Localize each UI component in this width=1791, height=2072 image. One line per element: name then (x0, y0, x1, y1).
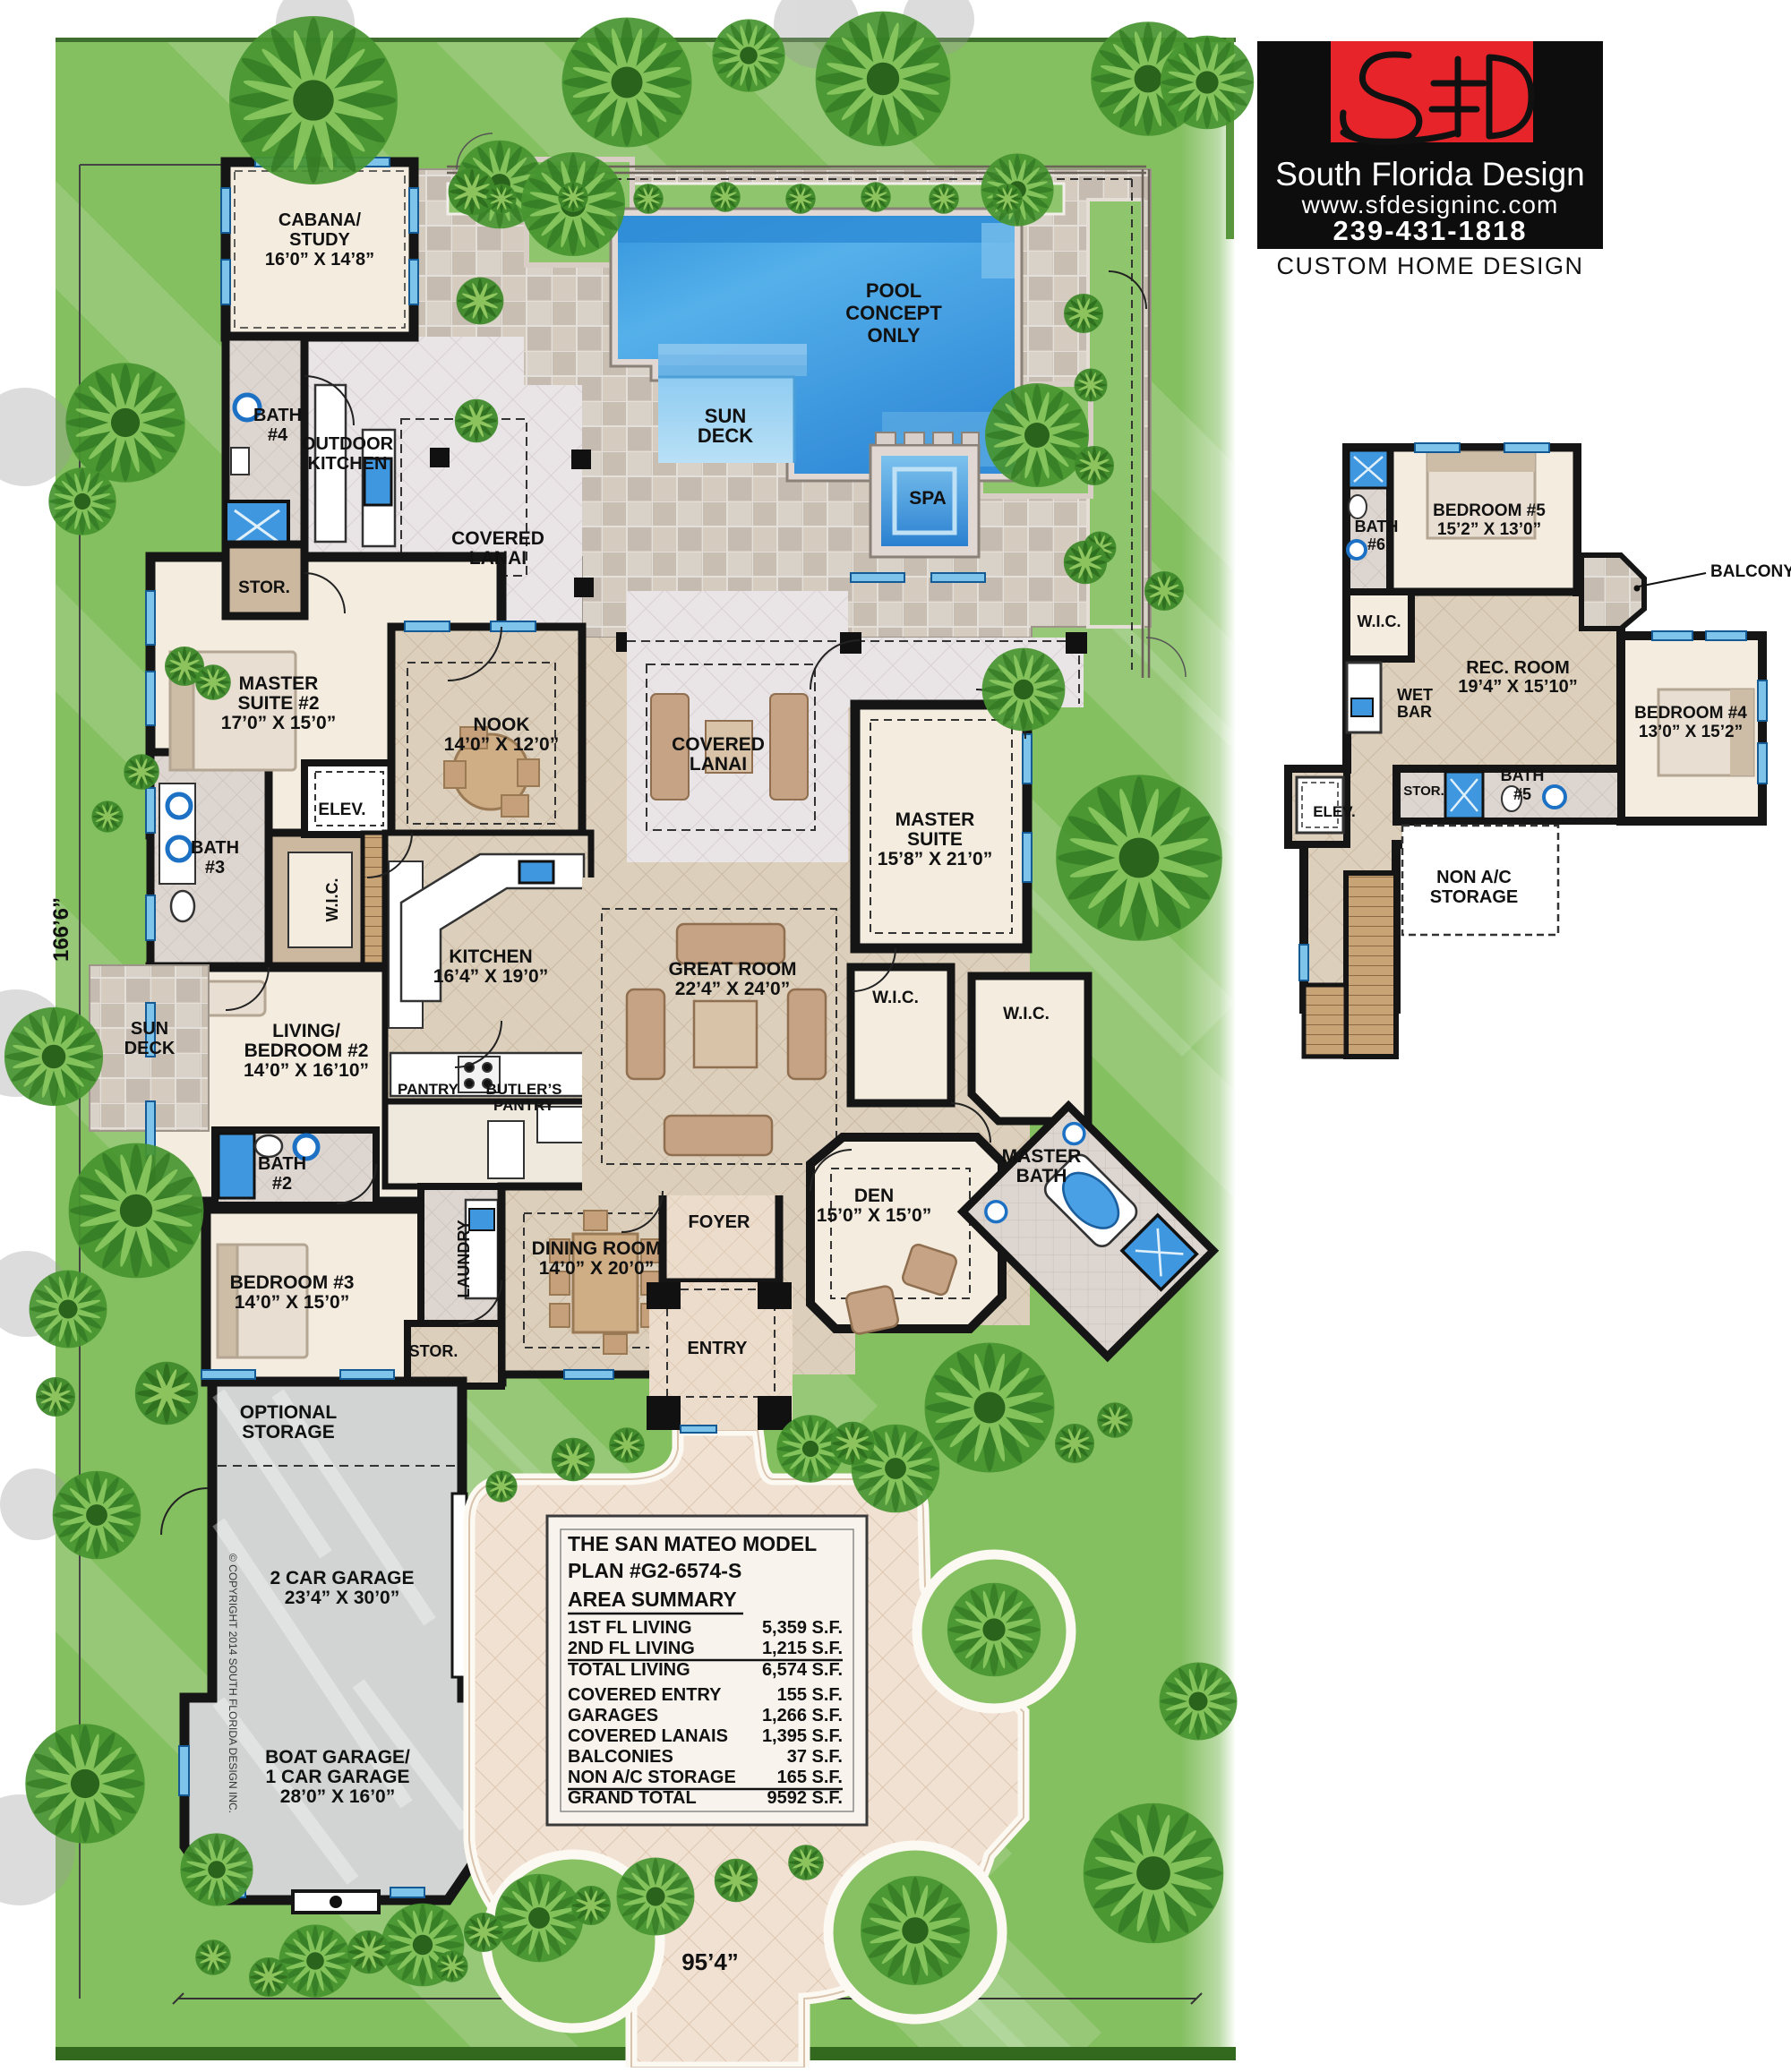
svg-text:#3: #3 (205, 858, 225, 878)
svg-text:#2: #2 (272, 1174, 292, 1194)
svg-text:STOR.: STOR. (238, 578, 290, 597)
svg-text:KITCHEN: KITCHEN (449, 946, 532, 967)
svg-text:GRAND TOTAL: GRAND TOTAL (568, 1788, 697, 1808)
svg-text:South Florida Design: South Florida Design (1275, 156, 1585, 193)
svg-text:STUDY: STUDY (289, 230, 350, 250)
svg-text:19’4” X 15’10”: 19’4” X 15’10” (1458, 677, 1577, 697)
svg-text:1,215 S.F.: 1,215 S.F. (762, 1639, 843, 1658)
svg-text:STOR.: STOR. (409, 1342, 458, 1360)
svg-text:#4: #4 (268, 425, 288, 445)
svg-text:17’0” X 15’0”: 17’0” X 15’0” (221, 713, 336, 733)
svg-text:BATH: BATH (191, 838, 239, 858)
svg-text:CUSTOM HOME DESIGN: CUSTOM HOME DESIGN (1276, 253, 1583, 279)
svg-text:15’8” X 21’0”: 15’8” X 21’0” (878, 849, 992, 869)
svg-text:MASTER: MASTER (1002, 1146, 1082, 1167)
svg-text:BALCONIES: BALCONIES (568, 1747, 673, 1767)
svg-text:SUN: SUN (131, 1019, 168, 1039)
svg-text:2 CAR GARAGE: 2 CAR GARAGE (270, 1568, 414, 1588)
svg-text:ONLY: ONLY (867, 324, 920, 347)
svg-text:PANTRY: PANTRY (398, 1081, 459, 1098)
svg-text:BALCONY: BALCONY (1710, 562, 1791, 581)
svg-text:MASTER: MASTER (239, 673, 319, 694)
svg-text:NON A/C: NON A/C (1436, 868, 1512, 887)
svg-text:ENTRY: ENTRY (687, 1339, 748, 1358)
svg-text:BOAT GARAGE/: BOAT GARAGE/ (265, 1747, 410, 1768)
svg-text:9592 S.F.: 9592 S.F. (767, 1788, 843, 1808)
svg-text:SPA: SPA (909, 488, 947, 509)
svg-text:W.I.C.: W.I.C. (1003, 1005, 1050, 1023)
svg-text:BATH: BATH (258, 1154, 306, 1174)
svg-text:PLAN #G2-6574-S: PLAN #G2-6574-S (568, 1559, 741, 1582)
svg-text:BEDROOM #5: BEDROOM #5 (1433, 501, 1546, 520)
svg-text:165 S.F.: 165 S.F. (777, 1768, 843, 1787)
svg-text:ELEV.: ELEV. (318, 801, 365, 819)
svg-text:STOR.: STOR. (1403, 783, 1444, 799)
svg-text:COVERED LANAIS: COVERED LANAIS (568, 1726, 728, 1746)
svg-text:SUITE: SUITE (907, 829, 963, 850)
svg-text:#6: #6 (1367, 535, 1385, 553)
svg-text:1,395 S.F.: 1,395 S.F. (762, 1726, 843, 1746)
svg-text:FOYER: FOYER (689, 1212, 750, 1232)
svg-text:ELEV.: ELEV. (1313, 803, 1356, 820)
svg-text:COVERED ENTRY: COVERED ENTRY (568, 1685, 722, 1705)
svg-text:COVERED: COVERED (451, 528, 544, 549)
svg-text:COVERED: COVERED (672, 734, 765, 755)
svg-text:GARAGES: GARAGES (568, 1706, 658, 1725)
svg-text:STORAGE: STORAGE (1430, 887, 1519, 907)
svg-text:KITCHEN: KITCHEN (308, 454, 388, 474)
svg-text:239-431-1818: 239-431-1818 (1333, 215, 1527, 246)
svg-text:OUTDOOR: OUTDOOR (302, 434, 394, 454)
svg-text:BAR: BAR (1397, 703, 1432, 721)
svg-text:TOTAL LIVING: TOTAL LIVING (568, 1660, 690, 1680)
svg-text:23’4” X 30’0”: 23’4” X 30’0” (285, 1588, 399, 1608)
svg-text:15’0” X 15’0”: 15’0” X 15’0” (817, 1205, 931, 1226)
svg-text:BEDROOM #4: BEDROOM #4 (1634, 704, 1747, 723)
svg-text:SUITE #2: SUITE #2 (237, 693, 319, 714)
svg-text:POOL: POOL (866, 279, 921, 302)
svg-text:LANAI: LANAI (469, 548, 527, 569)
svg-text:2ND FL LIVING: 2ND FL LIVING (568, 1639, 695, 1658)
svg-text:BEDROOM #3: BEDROOM #3 (230, 1272, 355, 1293)
svg-text:14’0” X 16’10”: 14’0” X 16’10” (244, 1060, 369, 1081)
svg-text:95’4”: 95’4” (681, 1948, 739, 1975)
svg-text:155 S.F.: 155 S.F. (777, 1685, 843, 1705)
svg-text:DEN: DEN (854, 1186, 894, 1206)
svg-text:BATH: BATH (253, 406, 302, 425)
svg-text:LANAI: LANAI (690, 754, 747, 775)
svg-text:OPTIONAL: OPTIONAL (240, 1402, 338, 1423)
svg-text:GREAT ROOM: GREAT ROOM (668, 959, 796, 980)
svg-text:BATH: BATH (1016, 1166, 1067, 1186)
svg-text:CABANA/: CABANA/ (279, 210, 362, 230)
svg-text:W.I.C.: W.I.C. (1358, 612, 1401, 630)
svg-text:BUTLER’S: BUTLER’S (486, 1081, 562, 1098)
svg-text:BATH: BATH (1355, 518, 1399, 535)
svg-text:13’0” X 15’2”: 13’0” X 15’2” (1639, 723, 1743, 741)
svg-text:CONCEPT: CONCEPT (845, 302, 942, 324)
svg-text:28’0” X 16’0”: 28’0” X 16’0” (280, 1786, 395, 1807)
svg-text:W.I.C.: W.I.C. (872, 989, 919, 1007)
svg-text:NOOK: NOOK (474, 715, 530, 735)
svg-text:166’6”: 166’6” (49, 897, 73, 962)
svg-text:AREA SUMMARY: AREA SUMMARY (568, 1588, 737, 1611)
svg-text:BATH: BATH (1501, 766, 1545, 784)
svg-text:MASTER: MASTER (895, 809, 975, 830)
svg-text:1,266 S.F.: 1,266 S.F. (762, 1706, 843, 1725)
svg-text:BEDROOM #2: BEDROOM #2 (244, 1040, 369, 1061)
svg-text:PANTRY: PANTRY (493, 1097, 555, 1114)
svg-text:16’0” X 14’8”: 16’0” X 14’8” (265, 250, 374, 270)
svg-text:LAUNDRY: LAUNDRY (455, 1220, 473, 1297)
svg-text:14’0” X 20’0”: 14’0” X 20’0” (539, 1258, 654, 1279)
svg-text:THE SAN MATEO MODEL: THE SAN MATEO MODEL (568, 1532, 817, 1555)
svg-text:STORAGE: STORAGE (242, 1422, 334, 1443)
svg-text:© COPYRIGHT 2014 SOUTH FLORIDA: © COPYRIGHT 2014 SOUTH FLORIDA DESIGN IN… (227, 1554, 239, 1813)
svg-text:W.I.C.: W.I.C. (323, 878, 341, 922)
svg-text:DECK: DECK (124, 1039, 176, 1058)
svg-text:1ST FL LIVING: 1ST FL LIVING (568, 1618, 692, 1638)
svg-text:6,574 S.F.: 6,574 S.F. (762, 1660, 843, 1680)
svg-text:REC. ROOM: REC. ROOM (1466, 658, 1570, 678)
svg-text:LIVING/: LIVING/ (272, 1021, 340, 1041)
svg-text:DINING ROOM: DINING ROOM (532, 1238, 662, 1259)
svg-text:22’4” X 24’0”: 22’4” X 24’0” (675, 979, 790, 999)
svg-text:14’0” X 15’0”: 14’0” X 15’0” (235, 1292, 349, 1313)
svg-text:WET: WET (1397, 686, 1433, 704)
svg-text:37 S.F.: 37 S.F. (787, 1747, 843, 1767)
svg-text:1 CAR GARAGE: 1 CAR GARAGE (265, 1767, 409, 1787)
svg-text:DECK: DECK (698, 424, 753, 447)
svg-text:15’2” X 13’0”: 15’2” X 13’0” (1437, 520, 1541, 539)
svg-text:14’0” X 12’0”: 14’0” X 12’0” (444, 734, 559, 755)
svg-text:16’4” X 19’0”: 16’4” X 19’0” (433, 966, 548, 987)
svg-text:NON A/C STORAGE: NON A/C STORAGE (568, 1768, 736, 1787)
svg-text:#5: #5 (1513, 785, 1531, 803)
svg-text:5,359 S.F.: 5,359 S.F. (762, 1618, 843, 1638)
